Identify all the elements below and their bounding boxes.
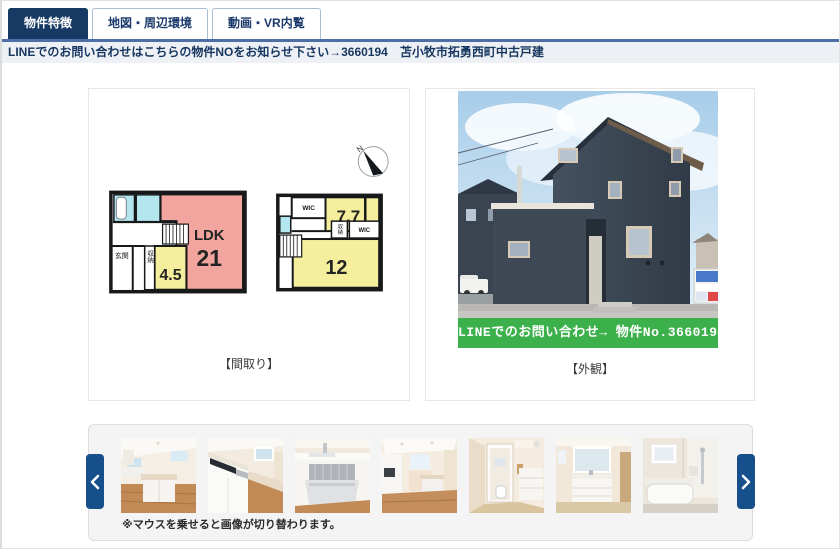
floorplan-panel: N L xyxy=(88,88,410,401)
exterior-photo-image xyxy=(458,91,718,348)
ldk-label: LDK xyxy=(194,228,225,244)
line-inquiry-notice: LINEでのお問い合わせはこちらの物件NOをお知らせ下さい→3660194 苫小… xyxy=(0,42,840,63)
thumbnail-washroom-hallway[interactable] xyxy=(469,438,544,513)
north-arrow-icon: N xyxy=(355,143,388,176)
wic2-label: WIC xyxy=(358,228,370,234)
ldk-size: 21 xyxy=(197,245,223,271)
property-detail-page: 物件特徴 地図・周辺環境 動画・VR内覧 LINEでのお問い合わせはこちらの物件… xyxy=(0,0,840,549)
entrance-label: 玄関 xyxy=(115,251,129,260)
line-inquiry-banner: LINEでのお問い合わせ→ 物件No.3660194 xyxy=(458,318,718,348)
room12-size: 12 xyxy=(325,257,347,279)
tab-map-surroundings[interactable]: 地図・周辺環境 xyxy=(92,8,208,39)
exterior-caption: 【外観】 xyxy=(426,360,754,377)
thumbnail-vanity[interactable] xyxy=(556,438,631,513)
thumbnail-kitchen-drawer[interactable] xyxy=(295,438,370,513)
floorplan-caption: 【間取り】 xyxy=(89,355,409,372)
floorplan-floor2: WIC 7.7 収納 WIC 12 xyxy=(278,195,381,289)
next-button[interactable] xyxy=(737,454,755,509)
thumbnail-kitchen-island[interactable] xyxy=(121,438,196,513)
photo-gallery-strip: ※マウスを乗せると画像が切り替わります。 xyxy=(88,424,753,541)
floorplan-image[interactable]: N L xyxy=(89,89,409,400)
tab-video-vr[interactable]: 動画・VR内覧 xyxy=(212,8,321,39)
thumbnail-row xyxy=(121,438,718,513)
storage-label-2f: 収納 xyxy=(336,223,343,235)
thumbnail-kitchen-counter[interactable] xyxy=(208,438,283,513)
room45-size: 4.5 xyxy=(159,267,181,284)
storage-label-1f: 収納 xyxy=(146,250,153,264)
tab-property-features[interactable]: 物件特徴 xyxy=(8,8,88,39)
prev-button[interactable] xyxy=(86,454,104,509)
wic-label: WIC xyxy=(302,205,315,212)
thumbnail-kitchen-dining[interactable] xyxy=(382,438,457,513)
floorplan-floor1: LDK 21 4.5 玄関 収納 xyxy=(111,192,245,291)
exterior-panel: LINEでのお問い合わせ→ 物件No.3660194 【外観】 xyxy=(425,88,755,401)
chevron-left-icon xyxy=(90,474,100,490)
gallery-hover-note: ※マウスを乗せると画像が切り替わります。 xyxy=(122,516,341,532)
exterior-photo[interactable]: LINEでのお問い合わせ→ 物件No.3660194 xyxy=(458,91,718,348)
chevron-right-icon xyxy=(741,474,751,490)
property-tabs: 物件特徴 地図・周辺環境 動画・VR内覧 xyxy=(8,8,321,39)
thumbnail-bathroom[interactable] xyxy=(643,438,718,513)
